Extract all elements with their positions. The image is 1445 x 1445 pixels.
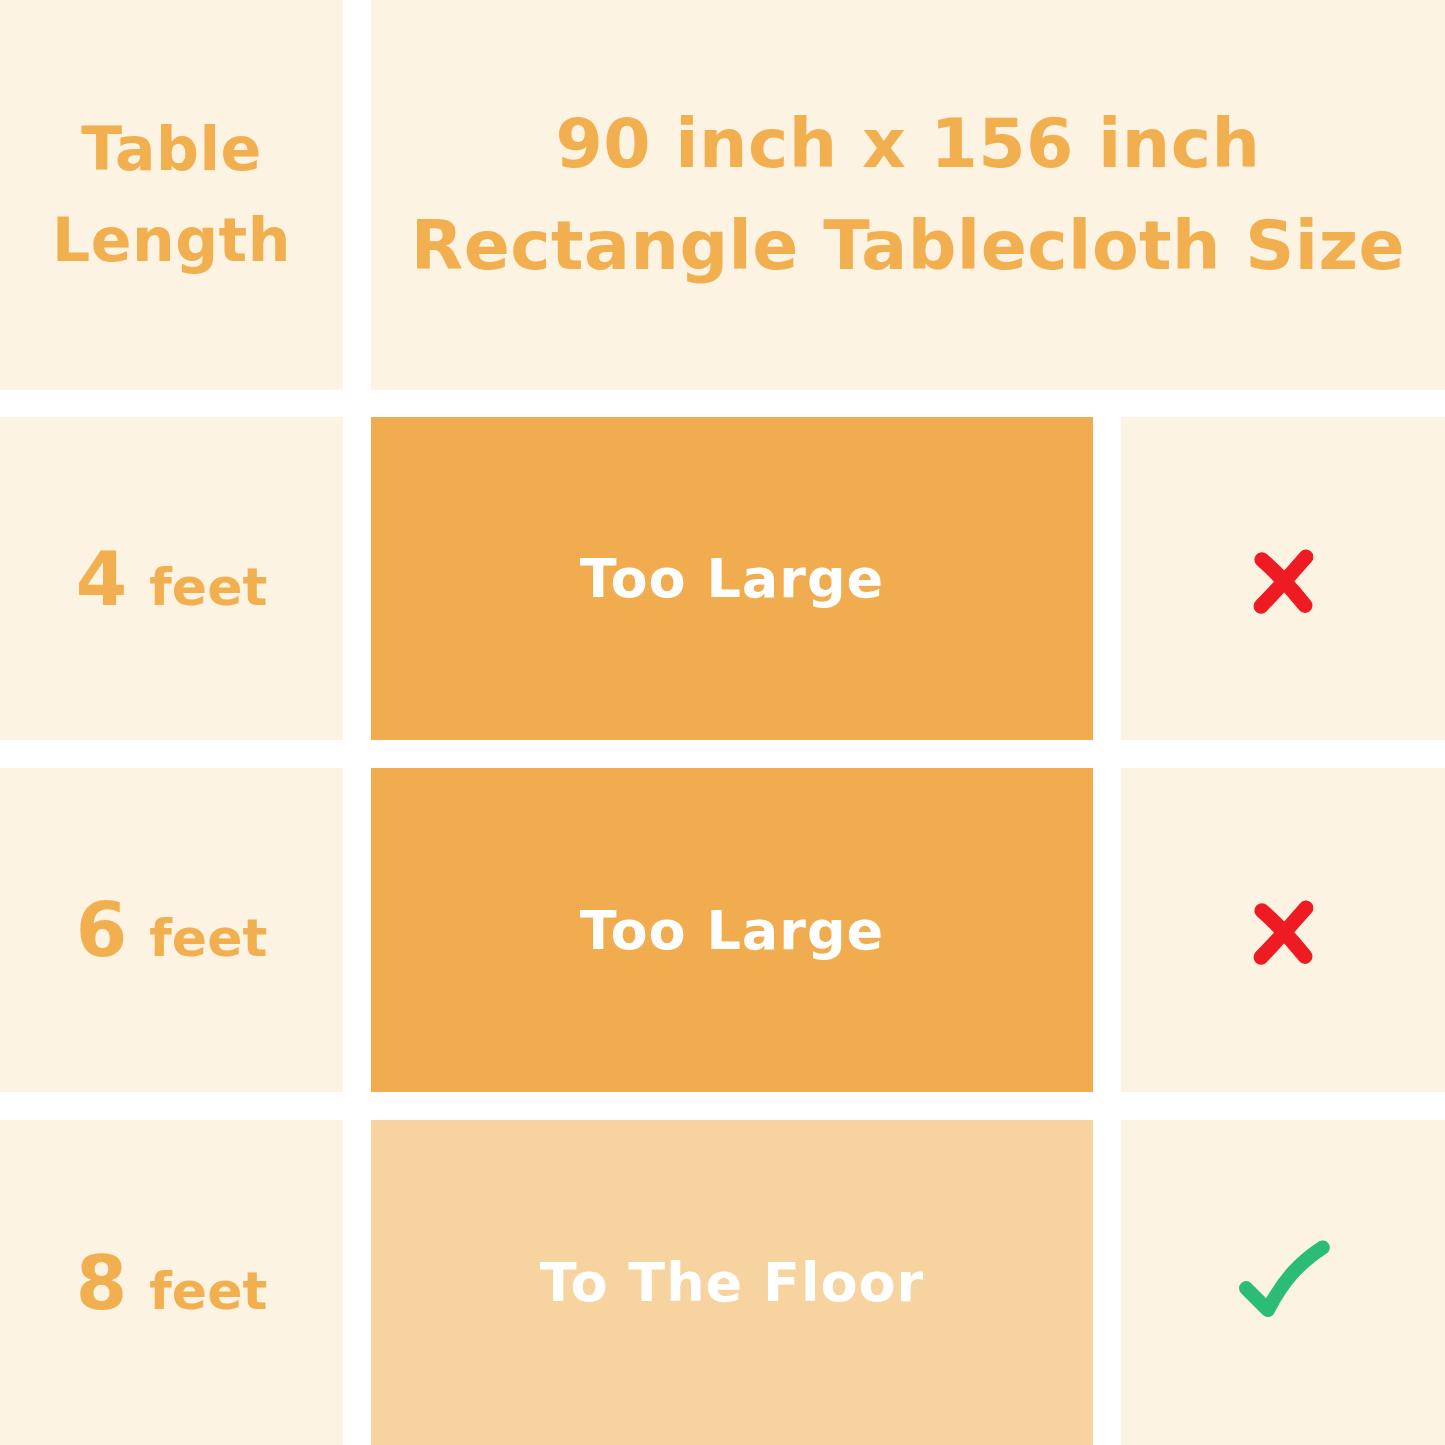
- row-4ft-length-unit: feet: [149, 557, 267, 617]
- table-length-header: Table Length: [52, 104, 291, 286]
- row-8ft-coverage-bar: To The Floor: [371, 1120, 1093, 1445]
- tablecloth-size-title: 90 inch x 156 inch Rectangle Tablecloth …: [411, 93, 1405, 297]
- tablecloth-size-chart: Table Length 90 inch x 156 inch Rectangl…: [0, 0, 1445, 1445]
- row-8ft-coverage-label: To The Floor: [540, 1251, 925, 1314]
- row-6ft-length-unit: feet: [149, 908, 267, 968]
- row-8ft-length-cell: 8 feet: [0, 1120, 343, 1445]
- row-6ft-length-label: 6 feet: [76, 887, 268, 973]
- red-x-icon: [1239, 535, 1327, 623]
- row-6ft-length-value: 6: [76, 887, 128, 973]
- tablecloth-size-title-line1: 90 inch x 156 inch: [411, 93, 1405, 195]
- row-8ft-length-unit: feet: [149, 1261, 267, 1321]
- row-4ft-length-cell: 4 feet: [0, 417, 343, 740]
- green-check-icon: [1231, 1235, 1335, 1330]
- row-8ft-verdict-cell: [1121, 1120, 1445, 1445]
- row-4ft-length-value: 4: [76, 536, 128, 622]
- row-6ft-coverage-bar: Too Large: [371, 768, 1093, 1092]
- header-tablecloth-size-cell: 90 inch x 156 inch Rectangle Tablecloth …: [371, 0, 1445, 390]
- red-x-icon: [1239, 886, 1327, 974]
- row-4ft-verdict-cell: [1121, 417, 1445, 740]
- row-6ft-verdict-cell: [1121, 768, 1445, 1092]
- row-4ft-coverage-bar: Too Large: [371, 417, 1093, 740]
- row-8ft-length-value: 8: [76, 1240, 128, 1326]
- header-table-length-cell: Table Length: [0, 0, 343, 390]
- row-4ft-coverage-label: Too Large: [580, 547, 884, 610]
- table-length-header-line1: Table: [52, 104, 291, 195]
- row-4ft-length-label: 4 feet: [76, 536, 268, 622]
- row-6ft-coverage-label: Too Large: [580, 899, 884, 962]
- table-length-header-line2: Length: [52, 195, 291, 286]
- row-8ft-length-label: 8 feet: [76, 1240, 268, 1326]
- row-6ft-length-cell: 6 feet: [0, 768, 343, 1092]
- tablecloth-size-title-line2: Rectangle Tablecloth Size: [411, 195, 1405, 297]
